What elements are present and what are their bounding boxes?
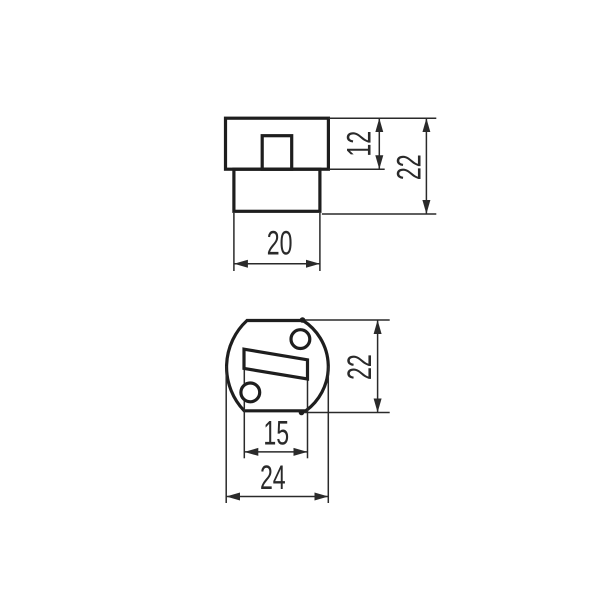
svg-text:22: 22 [342,354,379,380]
svg-text:22: 22 [391,154,428,180]
svg-text:12: 12 [341,131,378,157]
svg-text:20: 20 [267,225,293,262]
svg-text:24: 24 [260,460,286,497]
svg-text:15: 15 [263,415,289,452]
